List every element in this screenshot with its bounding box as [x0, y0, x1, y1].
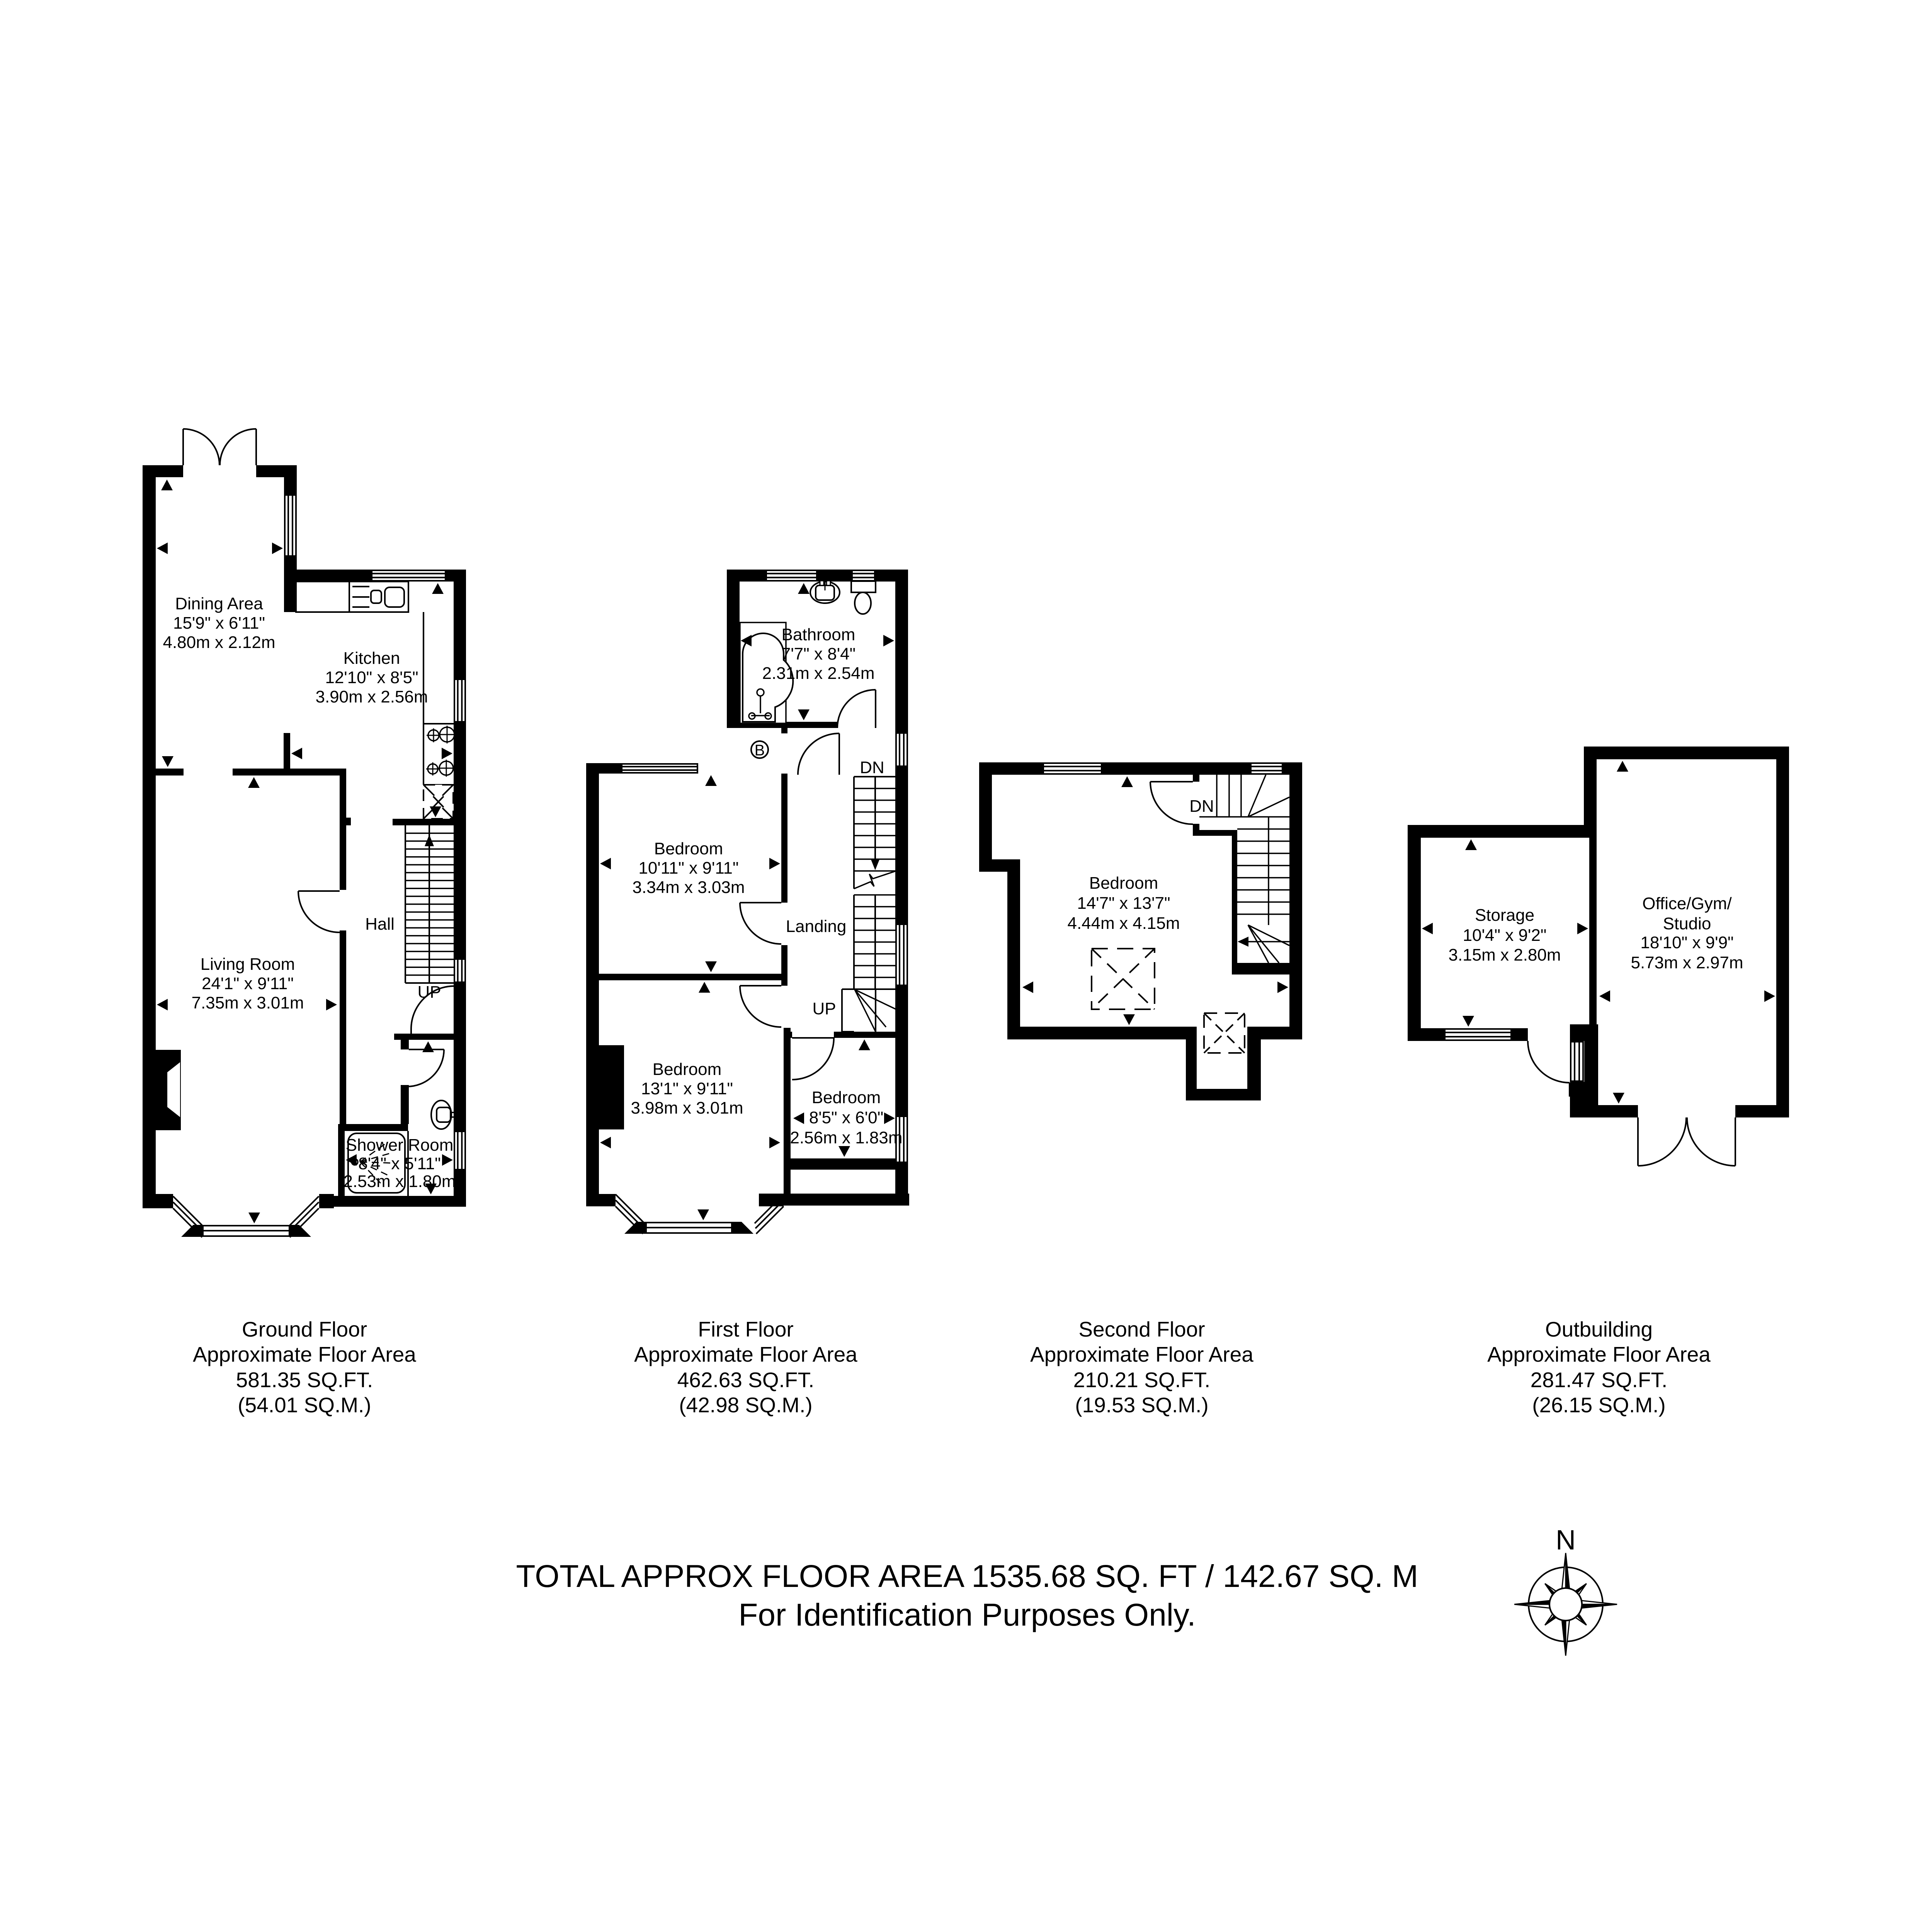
svg-text:Office/Gym/: Office/Gym/: [1642, 894, 1732, 913]
svg-text:Bedroom: Bedroom: [812, 1088, 881, 1107]
svg-text:24'1" x 9'11": 24'1" x 9'11": [202, 974, 294, 993]
svg-text:(19.53 SQ.M.): (19.53 SQ.M.): [1075, 1393, 1208, 1417]
svg-text:7.35m x 3.01m: 7.35m x 3.01m: [191, 993, 304, 1012]
svg-text:Approximate Floor Area: Approximate Floor Area: [1030, 1342, 1253, 1366]
svg-text:Bedroom: Bedroom: [1089, 874, 1158, 893]
svg-text:First Floor: First Floor: [698, 1317, 794, 1341]
svg-text:Dining Area: Dining Area: [175, 594, 263, 613]
svg-text:Ground Floor: Ground Floor: [242, 1317, 367, 1341]
svg-text:(42.98 SQ.M.): (42.98 SQ.M.): [679, 1393, 812, 1417]
svg-text:Hall: Hall: [365, 915, 395, 934]
svg-text:DN: DN: [1189, 797, 1214, 816]
svg-text:210.21 SQ.FT.: 210.21 SQ.FT.: [1073, 1368, 1211, 1392]
svg-text:Landing: Landing: [786, 917, 847, 936]
svg-text:TOTAL APPROX FLOOR AREA 1535.6: TOTAL APPROX FLOOR AREA 1535.68 SQ. FT /…: [516, 1559, 1418, 1594]
svg-text:Studio: Studio: [1663, 914, 1711, 933]
svg-text:(54.01 SQ.M.): (54.01 SQ.M.): [238, 1393, 371, 1417]
svg-text:Bedroom: Bedroom: [653, 1060, 722, 1079]
svg-text:UP: UP: [417, 983, 441, 1002]
svg-text:13'1" x 9'11": 13'1" x 9'11": [641, 1079, 733, 1098]
svg-text:2.53m x 1.80m: 2.53m x 1.80m: [343, 1172, 456, 1191]
svg-text:Bedroom: Bedroom: [654, 839, 723, 858]
svg-text:18'10" x 9'9": 18'10" x 9'9": [1640, 933, 1733, 952]
svg-text:3.90m x 2.56m: 3.90m x 2.56m: [315, 687, 428, 706]
svg-text:12'10" x 8'5": 12'10" x 8'5": [325, 668, 418, 687]
svg-text:10'11" x 9'11": 10'11" x 9'11": [638, 859, 738, 878]
svg-text:462.63 SQ.FT.: 462.63 SQ.FT.: [677, 1368, 815, 1392]
svg-text:For Identification Purposes On: For Identification Purposes Only.: [738, 1597, 1196, 1633]
svg-text:B: B: [755, 742, 765, 759]
svg-text:4.44m x 4.15m: 4.44m x 4.15m: [1067, 914, 1180, 933]
svg-text:3.34m x 3.03m: 3.34m x 3.03m: [632, 878, 745, 897]
svg-text:Shower Room: Shower Room: [346, 1136, 454, 1155]
svg-text:281.47 SQ.FT.: 281.47 SQ.FT.: [1531, 1368, 1668, 1392]
svg-text:DN: DN: [860, 758, 884, 777]
svg-text:Approximate Floor Area: Approximate Floor Area: [1487, 1342, 1711, 1366]
svg-text:10'4" x 9'2": 10'4" x 9'2": [1463, 926, 1547, 945]
svg-text:(26.15 SQ.M.): (26.15 SQ.M.): [1532, 1393, 1665, 1417]
svg-text:Storage: Storage: [1475, 906, 1534, 925]
svg-text:3.15m x 2.80m: 3.15m x 2.80m: [1448, 946, 1561, 964]
svg-text:Outbuilding: Outbuilding: [1545, 1317, 1653, 1341]
svg-text:2.56m x 1.83m: 2.56m x 1.83m: [790, 1128, 902, 1147]
svg-text:Living Room: Living Room: [201, 955, 295, 974]
svg-text:2.31m x 2.54m: 2.31m x 2.54m: [762, 664, 874, 683]
svg-text:581.35 SQ.FT.: 581.35 SQ.FT.: [236, 1368, 373, 1392]
svg-text:3.98m x 3.01m: 3.98m x 3.01m: [631, 1099, 743, 1117]
svg-text:8'5" x 6'0": 8'5" x 6'0": [809, 1108, 883, 1127]
svg-text:Kitchen: Kitchen: [344, 649, 400, 668]
svg-text:14'7" x 13'7": 14'7" x 13'7": [1077, 894, 1170, 913]
svg-text:Second Floor: Second Floor: [1078, 1317, 1205, 1341]
svg-text:UP: UP: [812, 999, 836, 1018]
svg-text:4.80m x 2.12m: 4.80m x 2.12m: [163, 633, 275, 652]
svg-text:8'4" x 5'11": 8'4" x 5'11": [358, 1154, 441, 1173]
svg-text:7'7" x 8'4": 7'7" x 8'4": [781, 645, 855, 663]
svg-text:15'9" x 6'11": 15'9" x 6'11": [173, 614, 265, 633]
svg-text:Approximate Floor Area: Approximate Floor Area: [634, 1342, 857, 1366]
svg-text:Bathroom: Bathroom: [782, 625, 855, 644]
svg-text:N: N: [1556, 1525, 1576, 1556]
svg-text:5.73m x 2.97m: 5.73m x 2.97m: [1631, 953, 1743, 972]
svg-text:Approximate Floor Area: Approximate Floor Area: [193, 1342, 416, 1366]
